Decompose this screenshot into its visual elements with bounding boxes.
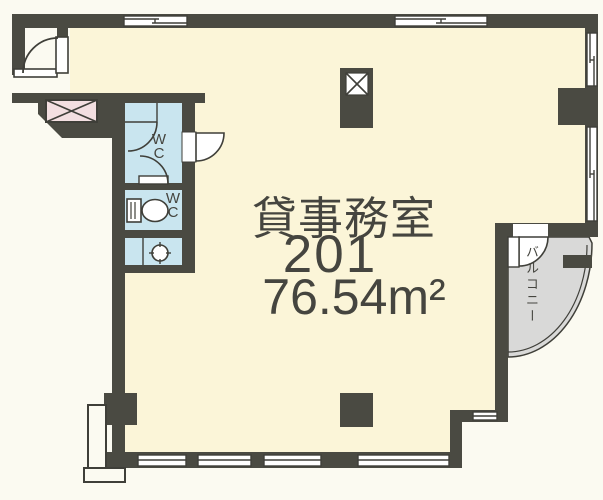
wall-balcony-left xyxy=(495,237,508,422)
wall-top xyxy=(12,14,598,28)
balcony-label: バルコニー xyxy=(522,245,541,325)
unit-area: 76.54m² xyxy=(238,268,470,326)
window-top-left-icon xyxy=(124,16,187,26)
toilet-icon xyxy=(127,199,168,222)
window-bottom-2-icon xyxy=(198,455,251,466)
wall-door-stub xyxy=(57,14,68,40)
window-right-upper-icon xyxy=(587,33,597,86)
window-step-icon xyxy=(473,412,497,420)
window-bottom-4-icon xyxy=(358,455,449,466)
wc-stall-door-leaf xyxy=(139,176,168,184)
exterior-structure-vertical xyxy=(88,405,106,468)
window-top-right-icon xyxy=(395,16,487,26)
wc-lower-label: WC xyxy=(163,192,183,220)
elevator-icon xyxy=(46,100,97,122)
window-bottom-3-icon xyxy=(264,455,321,466)
pillar-center-bottom xyxy=(340,393,373,427)
wall-entry-band xyxy=(12,93,205,103)
window-bottom-1-icon xyxy=(138,455,186,466)
wc-upper-label: WC xyxy=(149,133,169,161)
pillar-left xyxy=(104,393,137,425)
window-right-lower-icon xyxy=(587,127,597,221)
pillar-right xyxy=(558,88,585,125)
column-marker-icon xyxy=(346,73,368,95)
wall-wc-bottom xyxy=(112,265,195,273)
exterior-structure-horizontal xyxy=(84,468,125,482)
wall-balcony-stub xyxy=(563,255,592,268)
floor-plan: 貸事務室 201 76.54m² WC WC バルコニー xyxy=(0,0,603,500)
wall-wc-divider-2 xyxy=(125,230,195,238)
